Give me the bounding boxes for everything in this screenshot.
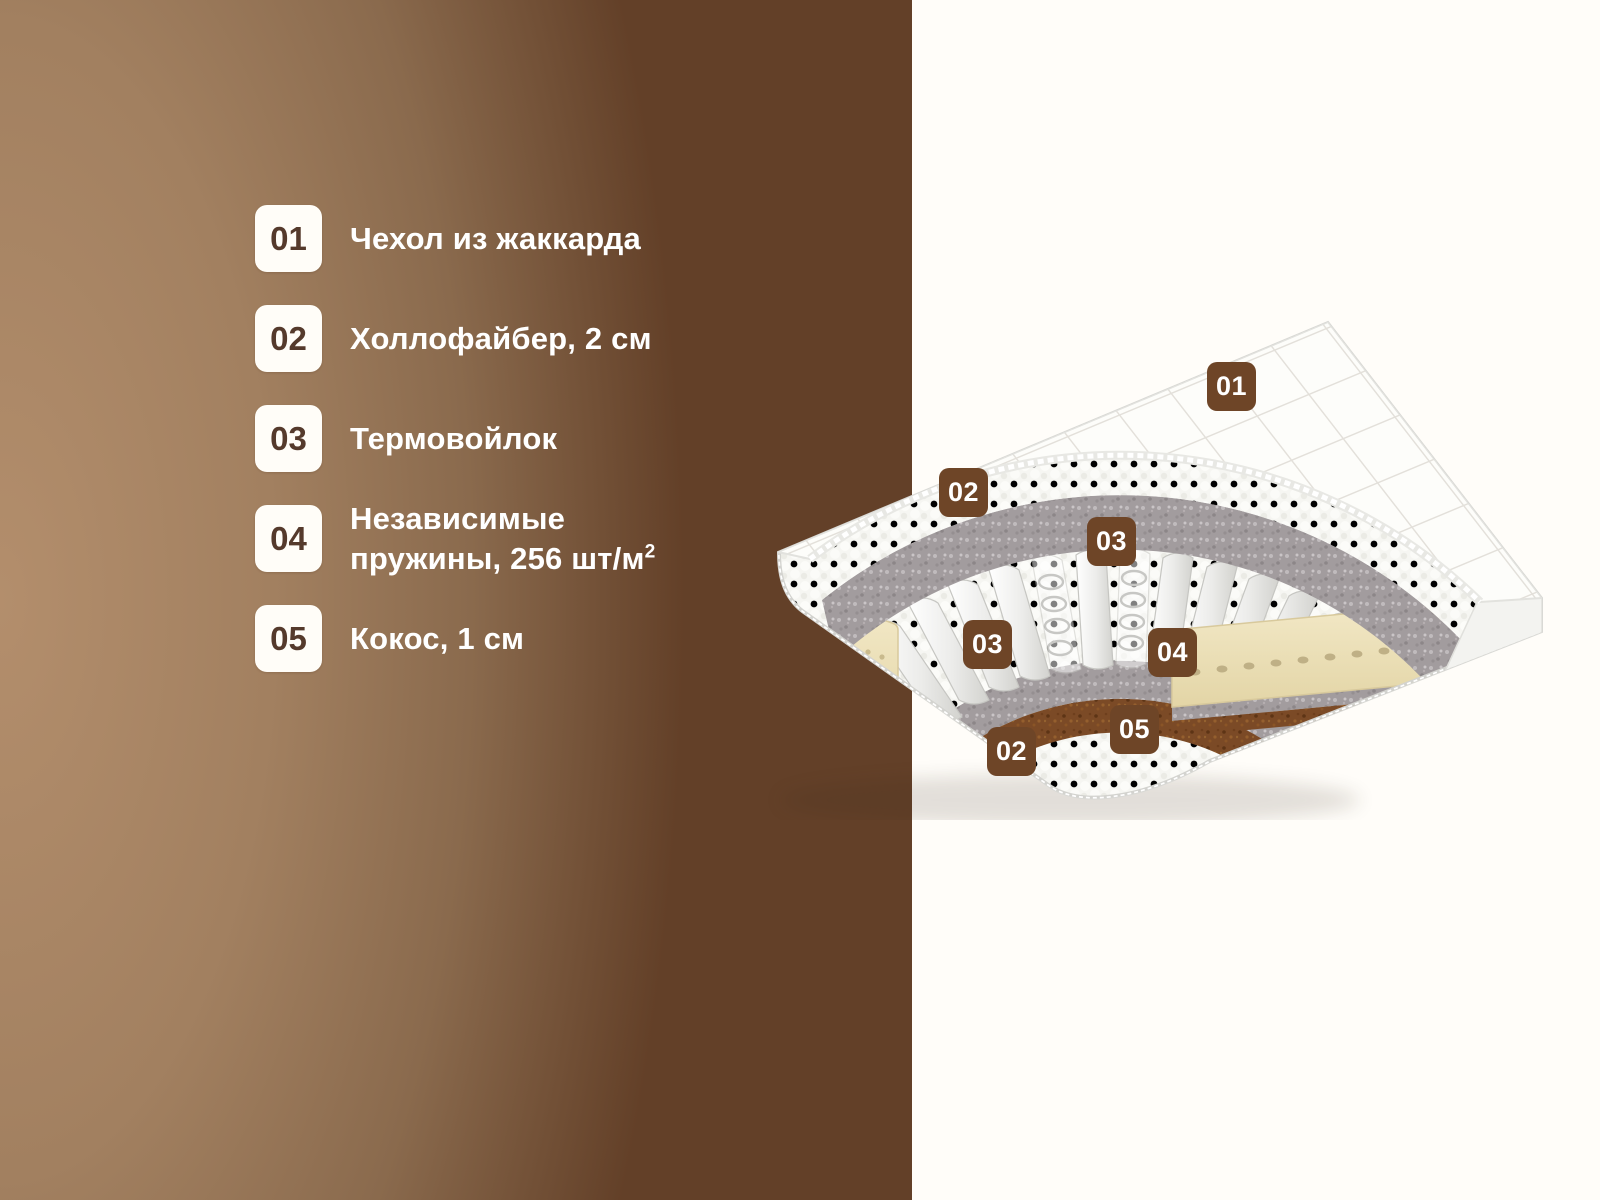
mattress-badge-03: 03: [963, 620, 1012, 669]
legend-item: 03 Термовойлок: [255, 405, 656, 472]
legend-number-tile: 02: [255, 305, 322, 372]
legend-item-label: Термовойлок: [350, 419, 557, 458]
legend-item-label: Независимыепружины, 256 шт/м2: [350, 499, 656, 577]
legend-item-label: Чехол из жаккарда: [350, 219, 641, 258]
legend-item: 05 Кокос, 1 см: [255, 605, 656, 672]
mattress-badge-03: 03: [1087, 517, 1136, 566]
mattress-badge-04: 04: [1148, 628, 1197, 677]
superscript-2: 2: [645, 541, 656, 562]
legend-item: 01 Чехол из жаккарда: [255, 205, 656, 272]
mattress-badge-02: 02: [987, 727, 1036, 776]
mattress-badge-05: 05: [1110, 705, 1159, 754]
legend-item: 02 Холлофайбер, 2 см: [255, 305, 656, 372]
legend-item-label: Кокос, 1 см: [350, 619, 524, 658]
mattress-badge-02: 02: [939, 468, 988, 517]
legend-number-tile: 05: [255, 605, 322, 672]
legend-item: 04 Независимыепружины, 256 шт/м2: [255, 505, 656, 572]
mattress-badge-01: 01: [1207, 362, 1256, 411]
legend-number-tile: 03: [255, 405, 322, 472]
legend-number-tile: 01: [255, 205, 322, 272]
layers-legend: 01 Чехол из жаккарда 02 Холлофайбер, 2 с…: [255, 205, 656, 672]
legend-item-label: Холлофайбер, 2 см: [350, 319, 652, 358]
legend-number-tile: 04: [255, 505, 322, 572]
